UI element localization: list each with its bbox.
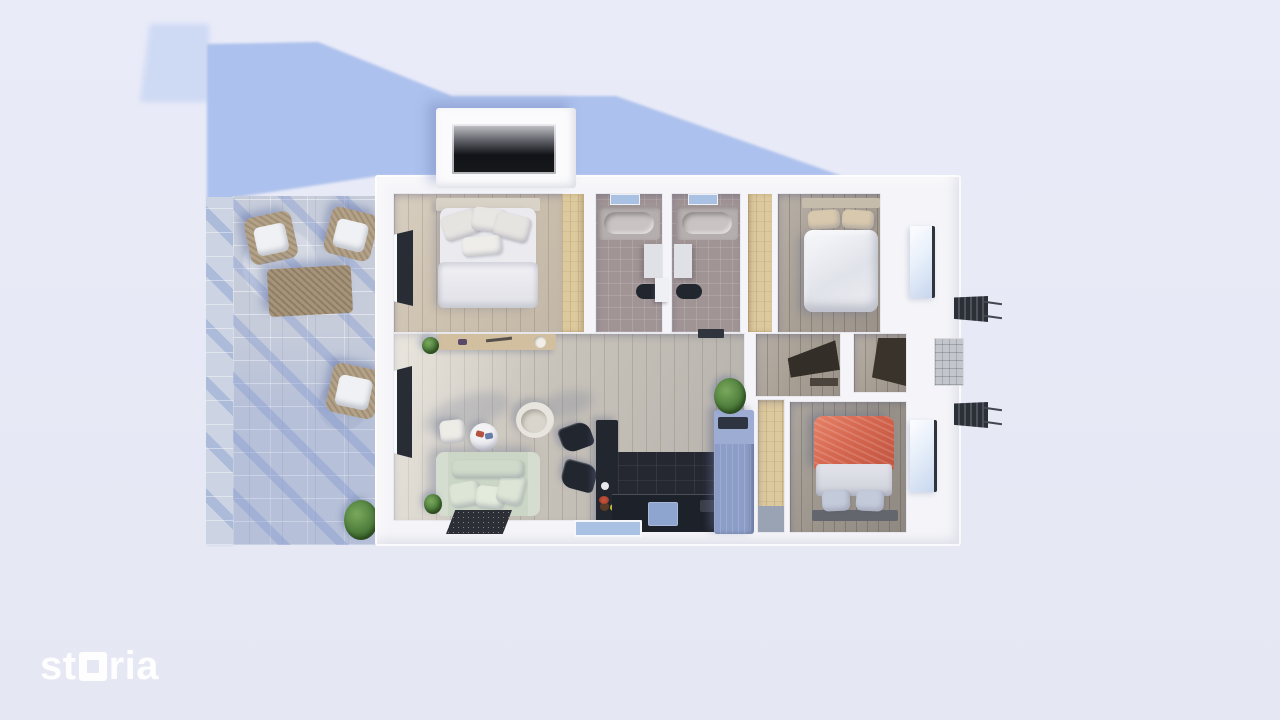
bottom-wall-window bbox=[574, 520, 642, 537]
bathroom2-floor bbox=[672, 194, 740, 332]
living-window bbox=[394, 366, 412, 458]
bathroom-vanity bbox=[644, 244, 662, 278]
sofa-cushion bbox=[452, 460, 524, 478]
patio-coffee-table bbox=[267, 265, 353, 317]
stair-landing bbox=[810, 378, 838, 386]
fridge-top-cap bbox=[714, 410, 754, 444]
bed-double-red bbox=[814, 416, 894, 516]
doormat-dark bbox=[446, 510, 512, 534]
bedroom3-floor bbox=[790, 402, 906, 532]
vestibule-opening bbox=[452, 124, 556, 174]
bathtub bbox=[676, 206, 738, 240]
fridge-cabinet bbox=[714, 410, 754, 534]
kitchen-floor-tiles bbox=[618, 452, 724, 496]
vestibule bbox=[436, 108, 576, 188]
table-decor bbox=[485, 432, 494, 439]
bed-headboard bbox=[802, 198, 880, 208]
bathtub-basin bbox=[682, 212, 732, 234]
storia-logo: st ria bbox=[40, 652, 159, 681]
patio-armchair bbox=[243, 210, 300, 267]
decor-object bbox=[458, 339, 467, 345]
living-plant-small bbox=[424, 494, 442, 514]
bathroom1-floor bbox=[596, 194, 662, 332]
wall-shelf-dark bbox=[698, 329, 724, 338]
shadow-soft-step bbox=[140, 24, 209, 102]
entry-hall-floor bbox=[758, 400, 784, 532]
bathtub-basin bbox=[604, 212, 654, 234]
bed-double bbox=[436, 198, 540, 310]
toilet-dark bbox=[676, 284, 702, 299]
bedroom1-wardrobe bbox=[562, 194, 584, 332]
floorplan-render-scene: st ria bbox=[0, 0, 1280, 720]
bedroom1-floor bbox=[394, 194, 562, 332]
logo-text-suffix: ria bbox=[109, 652, 159, 681]
cutting-board-blue bbox=[648, 502, 678, 526]
toilet-cistern bbox=[655, 278, 669, 302]
patio bbox=[233, 196, 390, 545]
pillow bbox=[821, 489, 850, 511]
sofa-armrest bbox=[528, 452, 540, 516]
chair-cushion bbox=[332, 218, 370, 254]
pillow bbox=[855, 489, 884, 511]
bed-duvet bbox=[804, 230, 878, 312]
bedroom2-window bbox=[910, 226, 935, 298]
flower-red bbox=[599, 496, 609, 504]
table-decor bbox=[475, 430, 484, 438]
stairwell-floor bbox=[854, 334, 906, 392]
corridor-floor bbox=[756, 334, 840, 396]
bathroom2-window bbox=[688, 194, 718, 205]
hall-closet bbox=[748, 194, 772, 332]
patio-plant bbox=[344, 500, 378, 540]
coffee-table-round bbox=[470, 423, 498, 451]
ottoman-square bbox=[439, 419, 466, 444]
console-table bbox=[438, 334, 556, 350]
lounge-chair-round bbox=[516, 402, 554, 438]
decor-object bbox=[486, 337, 512, 343]
pillow bbox=[807, 209, 840, 230]
logo-text-prefix: st bbox=[40, 652, 77, 681]
bed-blanket bbox=[438, 262, 538, 308]
decor-dish bbox=[534, 336, 546, 348]
bedroom1-window bbox=[394, 230, 413, 306]
lounge-chair-seat bbox=[521, 409, 547, 433]
knob-white bbox=[601, 482, 609, 490]
chair-cushion bbox=[253, 222, 290, 257]
pillow bbox=[461, 234, 503, 257]
patio-step-edge bbox=[206, 197, 234, 545]
balcony-awning bbox=[954, 402, 988, 428]
bed-double bbox=[804, 198, 880, 314]
stairwell-dark bbox=[872, 338, 906, 386]
pillow bbox=[841, 209, 874, 230]
bathtub bbox=[598, 206, 660, 240]
bedroom3-window bbox=[910, 420, 937, 492]
living-plant bbox=[422, 337, 439, 354]
staircase-dark bbox=[786, 340, 840, 377]
bathroom-vanity bbox=[674, 244, 692, 278]
fridge-vent-slot bbox=[718, 417, 748, 429]
sofa bbox=[436, 452, 540, 516]
chair-cushion bbox=[334, 374, 374, 411]
entry-threshold bbox=[758, 506, 784, 532]
bedroom2-floor bbox=[778, 194, 880, 332]
bathroom1-window bbox=[610, 194, 640, 205]
stone-chimney bbox=[934, 338, 964, 386]
balcony-awning bbox=[954, 296, 988, 322]
red-duvet-texture bbox=[814, 416, 894, 470]
logo-o-square-icon bbox=[79, 652, 107, 681]
kitchen-plant bbox=[714, 378, 746, 414]
